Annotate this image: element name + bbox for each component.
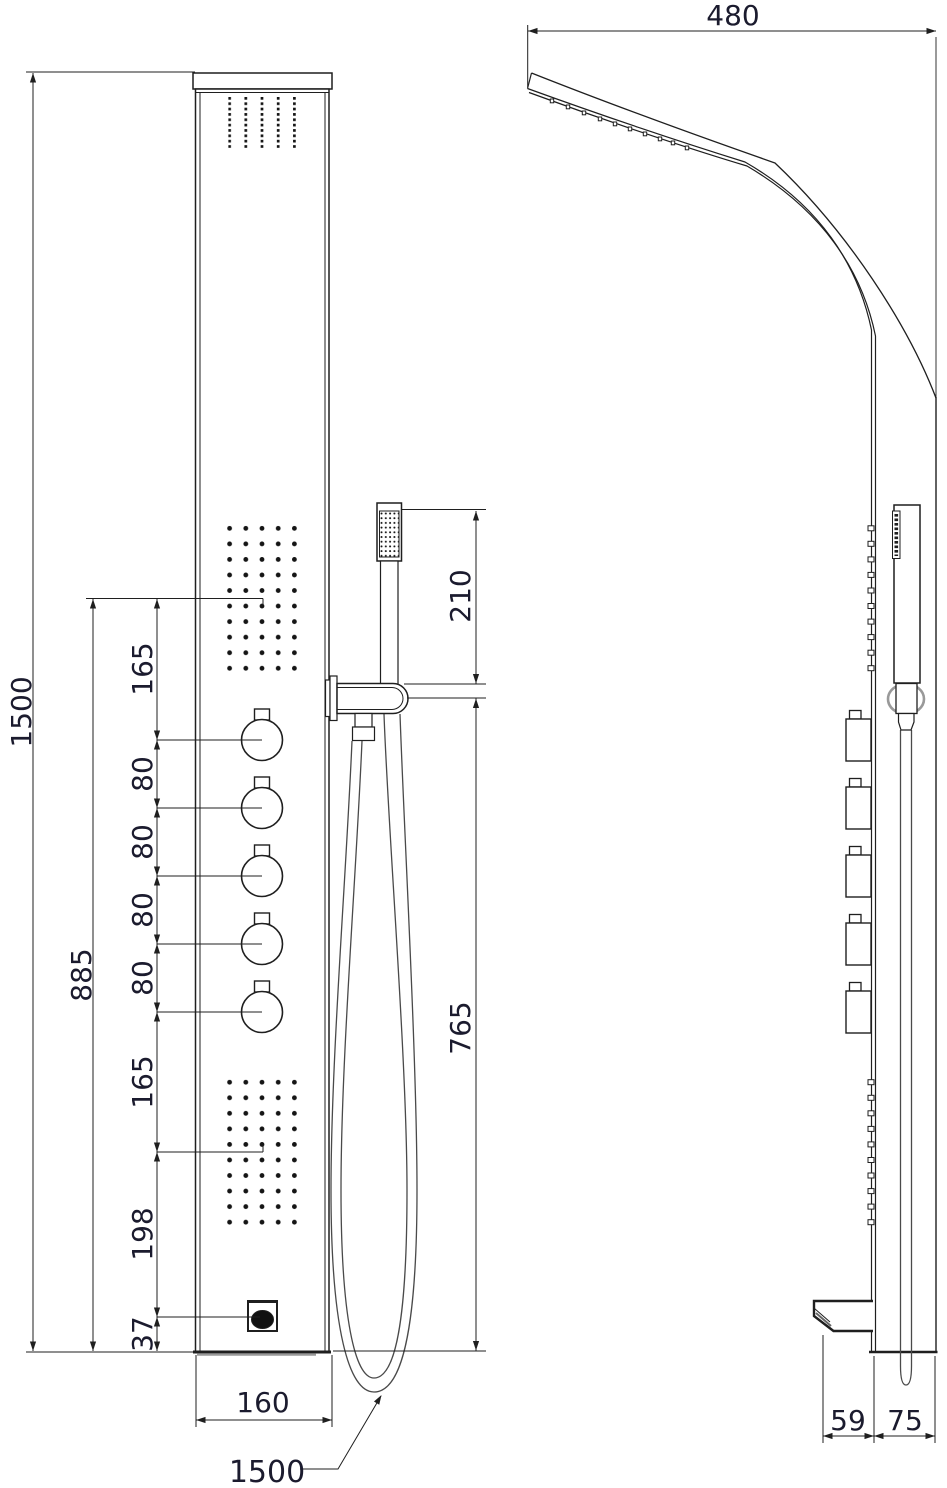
dim-hose-length-label: 1500 — [229, 1455, 305, 1488]
top-spray-field — [228, 97, 296, 148]
hand-shower-holder — [326, 676, 409, 741]
dim-spacing-label-6: 165 — [126, 1055, 159, 1108]
control-knob-side-4 — [846, 915, 871, 966]
spout-side — [814, 1301, 873, 1331]
hand-shower-handle — [381, 561, 399, 686]
body-jets-upper — [227, 526, 297, 673]
technical-drawing-page: 1500 885 165 80 80 80 80 165 198 37 210 … — [0, 0, 947, 1488]
hand-shower — [377, 503, 402, 686]
dimension-arrows — [30, 28, 936, 1439]
dimensions — [26, 25, 936, 1469]
dim-handset-label: 210 — [444, 569, 477, 622]
dim-spout-depth-label: 59 — [830, 1404, 866, 1437]
hand-shower-side — [888, 505, 924, 1385]
dim-spacing-label-5: 80 — [126, 960, 159, 996]
dim-hose-drop-label: 765 — [444, 1001, 477, 1054]
dim-head-depth-label: 480 — [706, 0, 759, 32]
head-underside — [528, 89, 872, 1353]
side-profile — [528, 37, 938, 1352]
spout-outlet — [252, 1311, 274, 1329]
front-view — [193, 73, 417, 1392]
panel-top-cap — [193, 73, 332, 89]
head-faceplate-edge — [529, 93, 876, 1353]
hose-connector-side — [899, 714, 915, 731]
dim-width-label: 160 — [236, 1386, 289, 1419]
shower-hose — [331, 714, 417, 1392]
dim-spacing-label-8: 37 — [126, 1316, 159, 1352]
holder-flange-outer — [326, 680, 331, 717]
holder-body-side — [896, 684, 917, 714]
hose-connector-lower — [353, 727, 375, 741]
leader-hose-length — [300, 1396, 381, 1469]
hand-shower-faceplate — [380, 511, 400, 557]
dim-overall-height-label: 1500 — [5, 676, 38, 747]
control-knob-side-2 — [846, 779, 871, 830]
dim-spacing-label-3: 80 — [126, 824, 159, 860]
shower-panel-drawing: 1500 885 165 80 80 80 80 165 198 37 210 … — [0, 0, 947, 1488]
shower-hose-side — [901, 730, 912, 1385]
dim-spacing-label-2: 80 — [126, 756, 159, 792]
control-knob-side-1 — [846, 711, 871, 762]
dim-controls-span-label: 885 — [65, 948, 98, 1001]
control-knob-side-5 — [846, 983, 871, 1034]
holder-flange-inner — [330, 676, 337, 721]
dim-spacing-label-4: 80 — [126, 892, 159, 928]
dim-panel-depth-label: 75 — [887, 1404, 923, 1437]
dim-spacing-label-1: 165 — [126, 642, 159, 695]
dim-spacing-label-7: 198 — [126, 1207, 159, 1260]
control-knob-side-3 — [846, 847, 871, 898]
spout — [248, 1301, 277, 1331]
hose-connector-upper — [355, 714, 372, 728]
body-jets-lower — [227, 1080, 297, 1227]
side-view — [528, 37, 938, 1385]
